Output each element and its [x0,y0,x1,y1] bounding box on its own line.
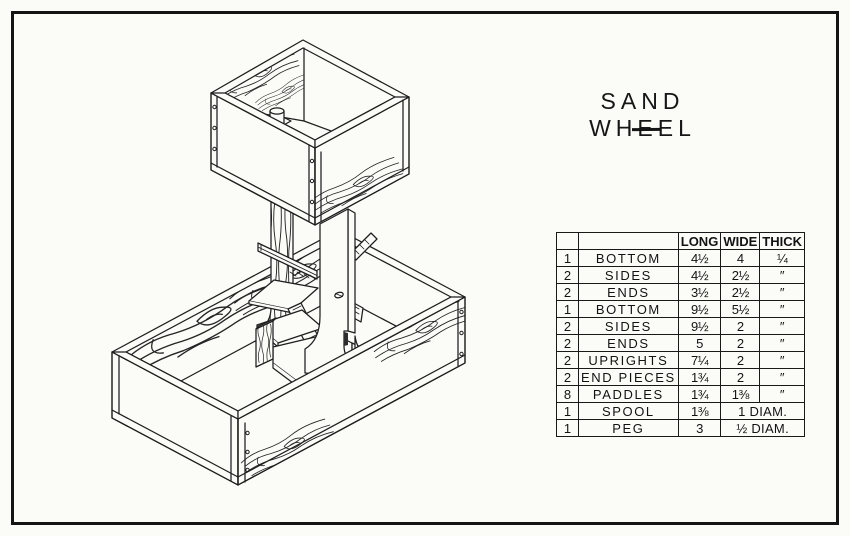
thick-cell: ″ [760,267,805,284]
long-cell: 1¾ [678,386,721,403]
thick-cell: ″ [760,369,805,386]
part-name-cell: ENDS [579,284,679,301]
part-name-cell: BOTTOM [579,301,679,318]
wide-cell: 4 [721,250,760,267]
qty-cell: 2 [557,352,579,369]
upright-slot [344,332,348,346]
table-row: 2END PIECES1¾2″ [557,369,805,386]
wide-cell: 2 [721,335,760,352]
table-row: 1PEG3½ DIAM. [557,420,805,437]
part-name-cell: UPRIGHTS [579,352,679,369]
table-row: 1BOTTOM4½4¼ [557,250,805,267]
part-name-cell: PADDLES [579,386,679,403]
table-row: 1SPOOL1⅜1 DIAM. [557,403,805,420]
long-cell: 4½ [678,250,721,267]
long-cell: 9½ [678,301,721,318]
diameter-cell: ½ DIAM. [721,420,805,437]
part-name-cell: SPOOL [579,403,679,420]
part-name-cell: PEG [579,420,679,437]
qty-cell: 2 [557,284,579,301]
long-cell: 1⅜ [678,403,721,420]
part-name-cell: SIDES [579,318,679,335]
qty-cell: 1 [557,301,579,318]
long-cell: 7¼ [678,352,721,369]
wide-cell: 2½ [721,284,760,301]
table-row: 8PADDLES1¾1⅜″ [557,386,805,403]
long-cell: 1¾ [678,369,721,386]
title-underline [632,128,661,131]
table-row: 2SIDES9½2″ [557,318,805,335]
diameter-cell: 1 DIAM. [721,403,805,420]
long-cell: 3½ [678,284,721,301]
hopper-box [211,40,409,225]
wide-cell: 2 [721,352,760,369]
qty-cell: 8 [557,386,579,403]
qty-cell: 2 [557,267,579,284]
thick-cell: ″ [760,352,805,369]
wide-cell: 5½ [721,301,760,318]
qty-cell: 2 [557,318,579,335]
column-header: WIDE [721,233,760,250]
long-cell: 9½ [678,318,721,335]
qty-cell: 1 [557,420,579,437]
qty-cell: 1 [557,250,579,267]
qty-cell: 1 [557,403,579,420]
wide-cell: 2½ [721,267,760,284]
thick-cell: ¼ [760,250,805,267]
long-cell: 4½ [678,267,721,284]
thick-cell: ″ [760,301,805,318]
column-header: THICK [760,233,805,250]
table-row: 2SIDES4½2½″ [557,267,805,284]
book-plate: SAND WHEEL LONGWIDETHICK1BOTTOM4½4¼2SIDE… [0,0,850,536]
qty-cell: 2 [557,335,579,352]
thick-cell: ″ [760,335,805,352]
table-corner-blank [579,233,679,250]
wide-cell: 1⅜ [721,386,760,403]
long-cell: 5 [678,335,721,352]
part-name-cell: BOTTOM [579,250,679,267]
qty-cell: 2 [557,369,579,386]
parts-cutting-list: LONGWIDETHICK1BOTTOM4½4¼2SIDES4½2½″2ENDS… [556,232,805,437]
table-row: 2UPRIGHTS7¼2″ [557,352,805,369]
table-row: 2ENDS3½2½″ [557,284,805,301]
thick-cell: ″ [760,284,805,301]
table-row: 2ENDS52″ [557,335,805,352]
part-name-cell: ENDS [579,335,679,352]
thick-cell: ″ [760,386,805,403]
wide-cell: 2 [721,318,760,335]
table-corner-blank [557,233,579,250]
page-title: SAND WHEEL [535,88,750,142]
part-name-cell: SIDES [579,267,679,284]
table-row: 1BOTTOM9½5½″ [557,301,805,318]
parts-table: LONGWIDETHICK1BOTTOM4½4¼2SIDES4½2½″2ENDS… [556,232,805,437]
wide-cell: 2 [721,369,760,386]
thick-cell: ″ [760,318,805,335]
part-name-cell: END PIECES [579,369,679,386]
long-cell: 3 [678,420,721,437]
column-header: LONG [678,233,721,250]
